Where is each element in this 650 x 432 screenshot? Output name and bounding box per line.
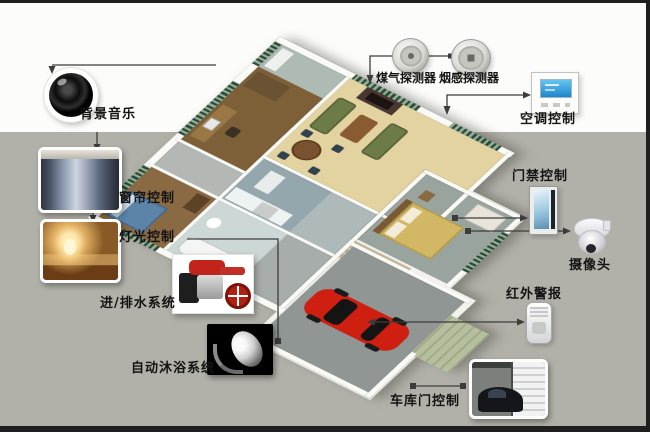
label-camera: 摄像头 xyxy=(569,254,611,273)
label-light-control: 灯光控制 xyxy=(119,226,175,245)
door-photo xyxy=(529,186,558,235)
pir-sensor-icon xyxy=(526,302,552,344)
water-pump-photo xyxy=(172,254,254,314)
label-curtain-control: 窗帘控制 xyxy=(119,187,175,206)
label-infrared-alarm: 红外警报 xyxy=(506,283,562,302)
label-auto-bath: 自动沐浴系统 xyxy=(131,357,215,376)
curtain-photo xyxy=(38,147,122,213)
label-gas-detector: 煤气探测器 xyxy=(376,69,436,86)
lamp-room-photo xyxy=(40,219,121,283)
label-background-music: 背景音乐 xyxy=(80,103,136,122)
label-smoke-detector: 烟感探测器 xyxy=(439,69,499,86)
shower-head-photo xyxy=(207,324,273,375)
smart-home-diagram: 背景音乐 窗帘控制 灯光控制 进/排水系统 自动沐浴系统 煤气探测器 烟感探测器… xyxy=(0,0,650,432)
dome-camera-icon xyxy=(571,214,611,258)
garage-door-photo xyxy=(469,359,548,419)
label-garage-door: 车库门控制 xyxy=(390,390,460,409)
label-water-system: 进/排水系统 xyxy=(100,292,176,311)
label-door-access: 门禁控制 xyxy=(512,165,568,184)
label-ac-control: 空调控制 xyxy=(520,108,576,127)
